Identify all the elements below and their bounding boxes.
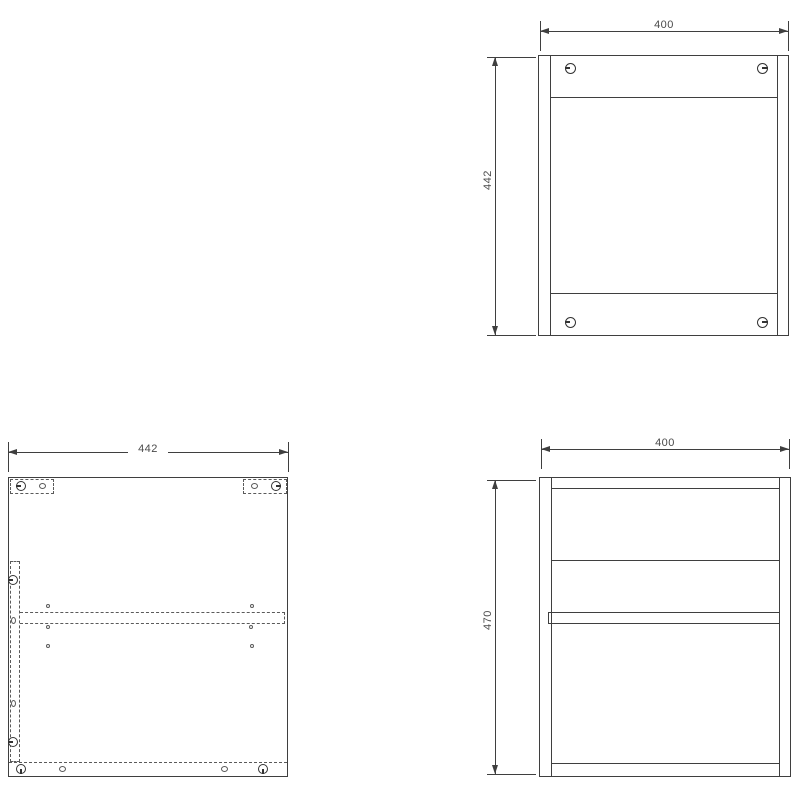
dim-label-panel-width: 442: [128, 443, 168, 455]
dowel-hole-icon: [39, 483, 46, 489]
dim-arrow-right-icon: [779, 28, 788, 34]
cam-slot: [565, 67, 570, 69]
side-back-edge-line: [779, 478, 780, 776]
extension-line: [487, 335, 536, 336]
top-panel-line: [552, 488, 779, 489]
extension-line: [540, 21, 541, 51]
bottom-panel-line: [552, 763, 779, 764]
cam-lock-icon: [16, 481, 26, 491]
cam-slot: [8, 741, 13, 743]
cam-slot: [762, 321, 767, 323]
cam-slot: [565, 321, 570, 323]
dim-arrow-left-icon: [541, 446, 550, 452]
extension-line: [288, 442, 289, 472]
dim-arrow-left-icon: [540, 28, 549, 34]
dimension-line: [541, 449, 789, 450]
cam-lock-icon: [271, 481, 281, 491]
extension-line: [789, 439, 790, 469]
shelf-pin-hole-icon: [46, 604, 50, 608]
cam-slot: [16, 485, 21, 487]
dowel-hole-icon: [221, 766, 228, 772]
shelf-pin-hole-icon: [250, 604, 254, 608]
dowel-hole-icon: [11, 700, 16, 707]
technical-drawing-canvas: 400 442 442: [0, 0, 800, 800]
cam-slot: [276, 485, 281, 487]
dimension-line: [495, 480, 496, 774]
side-view-outline: [539, 477, 791, 777]
dim-label-side-height: 470: [482, 600, 494, 640]
cam-lock-icon: [757, 317, 768, 328]
shelf-pin-hole-icon: [46, 625, 50, 629]
shelf-pin-hole-icon: [46, 644, 50, 648]
dim-label-front-width: 400: [644, 19, 684, 31]
side-panel-outline: [8, 477, 288, 777]
dowel-hole-icon: [251, 483, 258, 489]
fixed-shelf-band: [548, 612, 780, 624]
dim-arrow-up-icon: [492, 480, 498, 489]
dim-arrow-down-icon: [492, 765, 498, 774]
side-front-edge-line: [551, 478, 552, 776]
cam-lock-icon: [8, 575, 18, 585]
cam-lock-icon: [8, 737, 18, 747]
dimension-line: [495, 57, 496, 335]
dowel-hole-icon: [59, 766, 66, 772]
extension-line: [487, 774, 536, 775]
dim-arrow-right-icon: [279, 449, 288, 455]
dim-label-side-width: 400: [645, 437, 685, 449]
shelf-pin-hole-icon: [249, 625, 253, 629]
cam-lock-icon: [565, 317, 576, 328]
shelf-footprint-dashed: [20, 612, 285, 624]
dim-arrow-up-icon: [492, 57, 498, 66]
shelf-pin-hole-icon: [250, 644, 254, 648]
cam-lock-icon: [258, 764, 268, 774]
cam-lock-icon: [757, 63, 768, 74]
extension-line: [541, 439, 542, 469]
extension-line: [788, 21, 789, 51]
dim-arrow-down-icon: [492, 326, 498, 335]
cam-slot: [762, 67, 767, 69]
cam-slot: [20, 769, 22, 774]
cam-lock-icon: [16, 764, 26, 774]
dim-label-front-height: 442: [482, 160, 494, 200]
dimension-line: [540, 31, 788, 32]
front-top-rail-line: [551, 97, 777, 98]
cam-lock-icon: [565, 63, 576, 74]
bottom-panel-footprint-dashed: [9, 762, 287, 763]
front-right-stile-line: [777, 56, 778, 335]
front-bottom-rail-line: [551, 293, 777, 294]
cam-slot: [8, 579, 13, 581]
dim-arrow-left-icon: [8, 449, 17, 455]
cam-slot: [262, 769, 264, 774]
rail-line: [552, 560, 779, 561]
dim-arrow-right-icon: [780, 446, 789, 452]
dowel-hole-icon: [11, 617, 16, 624]
extension-line: [8, 442, 9, 472]
back-rail-footprint-dashed: [10, 561, 20, 762]
